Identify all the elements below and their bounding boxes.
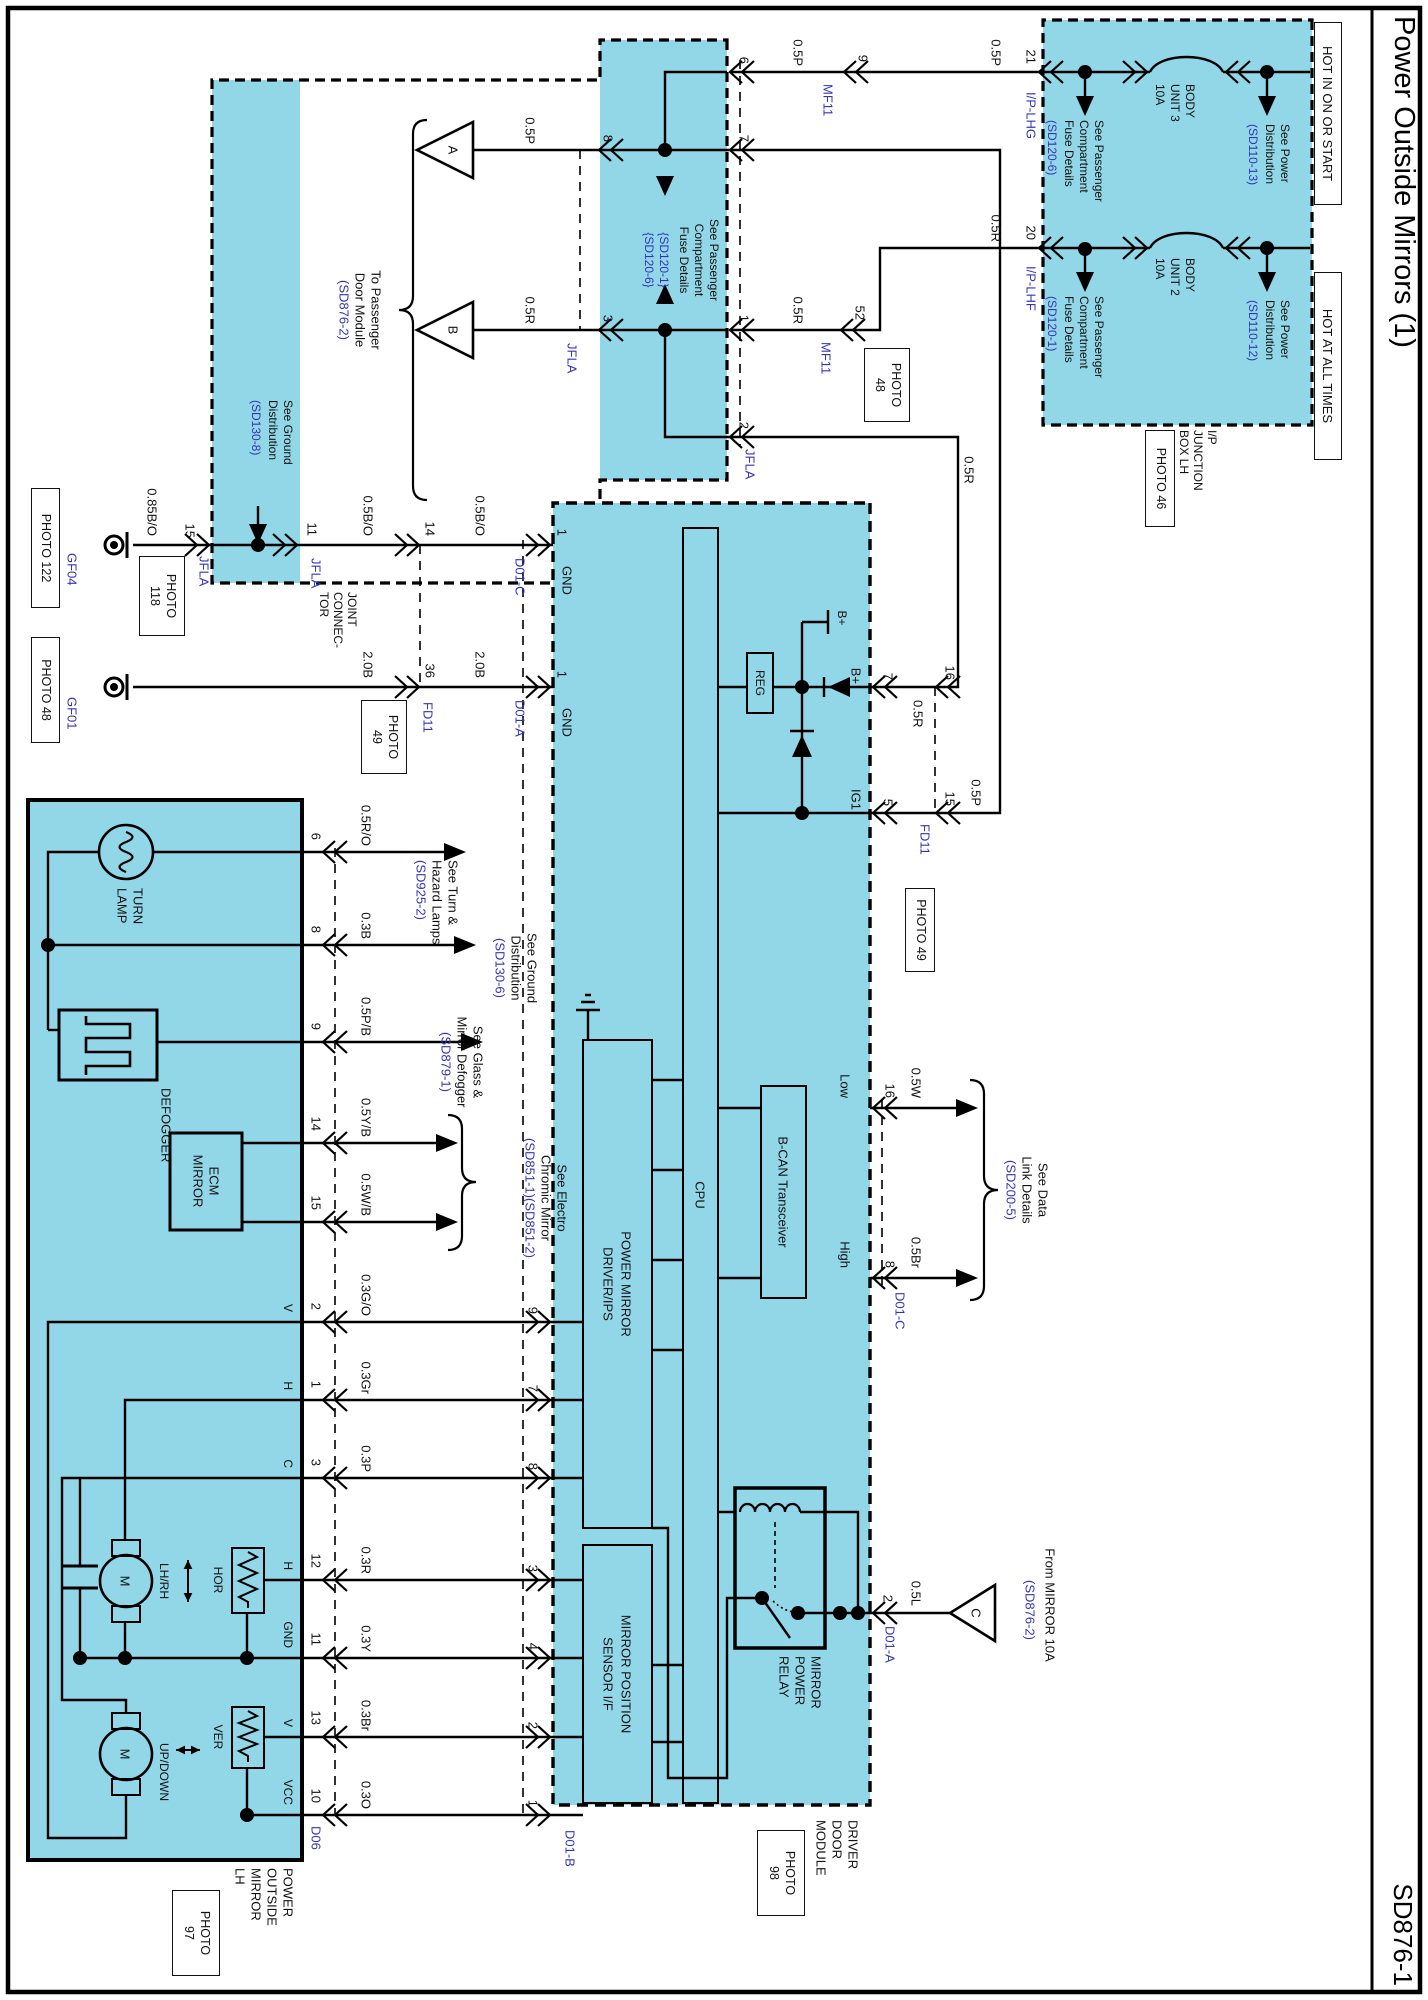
conn-ip-lhg: I/P-LHG [1025,92,1038,139]
mirror-pin-name: VCC [282,1780,294,1805]
wire-label: 0.5W [910,1068,923,1098]
see-power-1-ref: (SD110-13) [1247,124,1259,185]
ddm-pin7: 7 [882,673,895,680]
band-pin-1: 1 [738,315,751,322]
joint-connector: JOINT [346,592,358,627]
joint-connector: CONNEC- [332,592,344,648]
fuse-1-name: UNIT 3 [1169,84,1181,122]
see-fuse-1: Fuse Details [1063,120,1075,187]
wire-label: 0.5L [910,1581,923,1606]
gband-ref: (SD130-8) [250,400,262,455]
d06-pin: 15 [310,1196,323,1210]
conn-d01b: D01-B [564,1830,577,1867]
triangle-c: C [970,1608,983,1617]
d06-pin: 8 [310,926,323,933]
photo-48-box: 48 [871,378,887,392]
see-power-1: See Power [1279,124,1291,183]
gf04: GF04 [66,553,79,586]
see-power-2-ref: (SD110-12) [1247,300,1259,361]
motor-lr-label: LH/RH [158,1563,170,1599]
g1-pin1: 1 [556,529,569,536]
photo-98-box: PHOTO 98 [757,1830,805,1916]
mirror-name: LH [234,1868,247,1885]
g1-pin14: 14 [424,522,437,536]
band-pin-6: 6 [738,57,751,64]
g1-pin15: 15 [184,524,197,538]
d06-pin: 9 [310,1023,323,1030]
from-mirror-ref: (SD876-2) [1024,1580,1037,1640]
see-turn: See Turn & [447,860,460,925]
turn-lamp-label: LAMP [116,888,129,923]
see-defog: Mirror Defogger [456,1016,469,1107]
cpu-label: CPU [694,1181,707,1208]
ddm-pin: 8 [527,1463,540,1470]
see-gnd: Distribution [510,935,523,1000]
photo-46-box: PHOTO 46 [1145,430,1175,527]
fd11-pin15: 15 [944,792,957,806]
mirror-pin-name: V [282,1719,294,1727]
wire-label: 0.5R [524,297,537,324]
wire-label: 0.5P [792,39,805,66]
d06-pin: 12 [310,1554,323,1568]
to-pdm-ref: (SD876-2) [338,280,351,340]
photo-97-box: PHOTO 97 [172,1890,220,1976]
see-ecm: Chromic Mirror [540,1155,553,1241]
ddm-name: DOOR [831,1820,844,1859]
g1-pin11: 11 [306,523,319,537]
d06-pin: 1 [310,1381,323,1388]
mirror-pin-name: H [282,1561,294,1570]
wire-label: 0.5P/B [360,997,373,1036]
photo-49-box: PHOTO 49 [361,700,407,774]
photo-48-box: PHOTO [887,363,903,407]
see-fuse-2: See Passenger [1093,296,1105,378]
mirror-name: MIRROR [250,1868,263,1921]
bplus-pin-name: B+ [850,668,863,684]
see-datalink: See Data [1037,1163,1050,1217]
band-ref: {SD120-1} [658,232,670,287]
see-fuse-2: Fuse Details [1063,296,1075,363]
band-pin-3: 3 [602,315,615,322]
photo-97-box: PHOTO [196,1911,212,1955]
pin-20: 20 [1025,226,1038,240]
pot-ver-label: VER [212,1725,224,1750]
mirror-pin-name: GND [282,1621,294,1648]
from-mirror-text: From MIRROR 10A [1044,1548,1057,1661]
conn-mf11: MF11 [822,84,835,116]
can-pin8: 8 [884,1261,897,1268]
ecm-mirror-label: MIRROR [192,1155,205,1208]
see-defog-ref: (SD879-1) [440,1032,453,1092]
fd11-pin16: 16 [944,666,957,680]
band-pin-2: 2 [738,422,751,429]
relay-label: POWER [794,1656,807,1705]
wire-label: 0.5R [912,700,925,727]
fuse-2-amp: 10A [1154,258,1166,279]
see-ecm: See Electro [556,1164,569,1231]
wire-label: 0.5P [990,39,1003,66]
conn-jfla: JFLA [198,556,211,586]
mf11-pin52: 52 [854,306,867,320]
conn-fd11: FD11 [919,824,932,855]
conn-jfla: JFLA [566,343,579,373]
joint-connector: TOR [318,592,330,617]
ddm-pin: 9 [527,1307,540,1314]
fuse-2-name: UNIT 2 [1169,258,1181,296]
ip-junction-label: BOX LH [1178,430,1190,474]
wire-label: 0.5P [970,779,983,806]
wire-label: 0.5Br [910,1237,923,1268]
band-pin-7: 7 [738,135,751,142]
photo-98-box: PHOTO [781,1851,797,1895]
see-defog: See Glass & [472,1026,485,1098]
wire-label: 0.3Y [360,1625,373,1652]
d06-pin: 14 [310,1117,323,1131]
wire-label: 0.3G/O [360,1274,373,1316]
photo-49-box: 49 [368,730,384,744]
mirror-pin-name: H [282,1381,294,1390]
wire-label: 0.85B/O [146,488,159,536]
conn-d06: D06 [310,1826,323,1850]
see-turn-ref: (SD925-2) [415,860,428,920]
motor-ud-label: UP/DOWN [158,1743,170,1801]
d06-pin: 3 [310,1459,323,1466]
wire-label: 2.0B [362,651,375,678]
d06-pin: 11 [310,1633,323,1647]
see-fuse-1: Compartment [1078,120,1090,193]
conn-d01a: D01-A [514,700,527,737]
d06-pin: 10 [310,1789,323,1803]
d06-pin: 2 [310,1303,323,1310]
ddm-name: MODULE [815,1820,828,1876]
bplus-rail: B+ [836,610,848,625]
driver-label: POWER MIRROR [620,1231,633,1336]
ddm-gnd-pin: GND [561,708,574,737]
conn-d01c: D01-C [894,1292,907,1330]
conn-mf11: MF11 [820,342,833,374]
see-gnd: See Ground [526,933,539,1003]
band-text: Fuse Details [678,227,690,294]
photo-48-box: PHOTO 48 [864,348,910,422]
band-pin-8: 8 [602,135,615,142]
g2-pin36: 36 [424,664,437,678]
can-low: Low [839,1074,852,1098]
see-power-2: See Power [1279,300,1291,359]
wire-label: 0.5Y/B [360,1098,373,1137]
defogger-label: DEFOGGER [160,1088,173,1162]
d06-pin: 6 [310,833,323,840]
see-fuse-2-ref: (SD120-1) [1046,296,1058,351]
ddm-pin: 2 [527,1722,540,1729]
fuse-2-name: BODY [1184,258,1196,292]
ddm-pin: 4 [527,1643,540,1650]
wire-label: 0.3B [360,912,373,939]
ddm-gnd-pin: GND [561,566,574,595]
wire-label: 0.5P [524,117,537,144]
wire-label: 2.0B [474,651,487,678]
wire-label: 0.5R [792,297,805,324]
mirror-pin-name: C [282,1459,294,1468]
hot-label-1: HOT IN ON OR START [1314,22,1342,205]
photo-49-box: PHOTO [384,715,400,759]
wire-label: 0.3Br [360,1700,373,1731]
triangle-a: A [447,146,460,155]
photo-122-box: PHOTO 122 [31,488,60,608]
motor-m: M [119,1576,132,1587]
conn-jfla: JFLA [310,558,323,588]
wire-label: 0.3R [360,1547,373,1574]
conn-ip-lhf: I/P-LHF [1025,266,1038,311]
ddm-pin5: 5 [882,799,895,806]
mirror-name: OUTSIDE [266,1868,279,1926]
motor-m: M [119,1749,132,1760]
mps-label: MIRROR POSITION [620,1615,633,1733]
fuse-1-amp: 10A [1154,84,1166,105]
wire-label: 0.5B/O [362,496,375,536]
ddm-name: DRIVER [847,1820,860,1869]
see-fuse-1: See Passenger [1093,120,1105,202]
wire-label: 0.5R [990,215,1003,242]
to-pdm-text: To Passenger [370,270,383,350]
conn-d01c: D01-C [514,558,527,596]
see-ecm-ref: (SD851-1)(SD851-2) [524,1138,537,1258]
photo-97-box: 97 [180,1926,196,1940]
wire-label: 0.5R [963,456,976,483]
hot-label-2: HOT AT ALL TIMES [1314,272,1342,460]
ddm-pin: 1 [527,1800,540,1807]
photo-48-box: PHOTO 48 [31,637,60,743]
can-high: High [839,1241,852,1268]
photo-49-box: PHOTO 49 [905,888,935,972]
conn-fd11: FD11 [422,702,435,733]
see-fuse-2: Compartment [1078,296,1090,369]
see-power-2: Distribution [1264,300,1276,360]
ig1-pin-name: IG1 [850,789,863,810]
see-turn: Hazard Lamps [431,860,444,945]
fuse-1-name: BODY [1184,84,1196,118]
g2-pin1: 1 [556,671,569,678]
mps-label: SENSOR I/F [602,1637,615,1711]
can-pin16: 16 [884,1084,897,1098]
ddm-pin: 7 [527,1385,540,1392]
pot-hor-label: HOR [212,1567,224,1594]
band-ref: {SD120-6} [643,232,655,287]
to-pdm-text: Door Module [354,273,367,347]
turn-lamp-label: TURN [132,888,145,924]
see-datalink: Link Details [1021,1156,1034,1223]
gf01: GF01 [66,697,79,730]
diagram-page: Power Outside Mirrors (1) SD876-1 HOT IN… [0,0,1428,2000]
band-text: Compartment [693,224,705,297]
mf11-pin9: 9 [857,55,870,62]
ip-junction-label: I/P [1206,430,1218,445]
wire-label: 0.5B/O [474,496,487,536]
wire-label: 0.3Gr [360,1361,373,1394]
mirror-name: POWER [282,1868,295,1917]
ip-junction-label: JUNCTION [1192,430,1204,491]
d06-pin: 13 [310,1711,323,1725]
photo-118-box: PHOTO [162,574,178,618]
photo-118-box: PHOTO 118 [139,556,185,636]
ddm-pin: 3 [527,1565,540,1572]
ecm-mirror-label: ECM [208,1167,221,1196]
page-title: Power Outside Mirrors (1) [1389,16,1418,348]
wire-label: 0.5W/B [360,1173,373,1216]
driver-label: DRIVER/IPS [602,1247,615,1321]
see-power-1: Distribution [1264,124,1276,184]
triangle-b: B [447,326,460,335]
photo-98-box: 98 [765,1866,781,1880]
gband-text: Distribution [267,400,279,460]
bcan-label: B-CAN Transceiver [777,1136,790,1247]
conn-d01a: D01-A [884,1626,897,1663]
see-gnd-ref: (SD130-6) [494,938,507,998]
wire-label: 0.5R/O [360,805,373,846]
relay-label: MIRROR [810,1656,823,1709]
wire-label: 0.3O [360,1781,373,1809]
see-fuse-1-ref: (SD120-6) [1046,120,1058,175]
photo-118-box: 118 [146,586,162,606]
mirror-pin-name: V [282,1304,294,1312]
wire-label: 0.3P [360,1445,373,1472]
ddm-pin2: 2 [882,1595,895,1602]
pin-21: 21 [1025,50,1038,64]
page-code: SD876-1 [1390,1883,1416,1986]
reg-label: REG [754,670,766,696]
gband-text: See Ground [282,400,294,465]
band-text: See Passenger [708,219,720,301]
conn-jfla: JFLA [744,449,757,479]
see-datalink-ref: (SD200-5) [1005,1160,1018,1220]
relay-label: RELAY [778,1656,791,1698]
